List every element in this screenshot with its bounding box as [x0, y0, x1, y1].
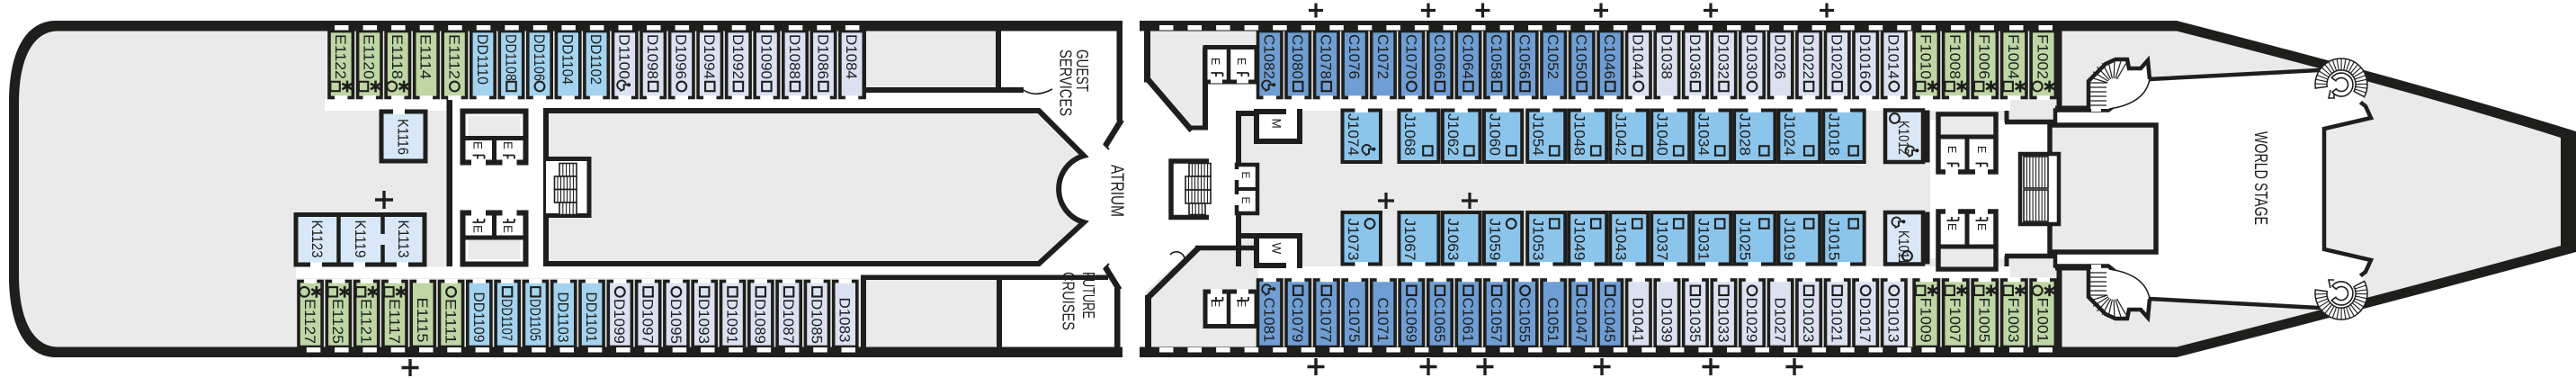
svg-text:E: E [501, 141, 514, 149]
svg-text:C1052: C1052 [1544, 34, 1561, 79]
svg-text:D1084: D1084 [843, 34, 860, 79]
svg-text:E1114: E1114 [417, 34, 434, 79]
svg-text:J1037: J1037 [1654, 219, 1670, 261]
svg-text:E: E [471, 225, 485, 233]
svg-text:J1048: J1048 [1571, 113, 1588, 156]
svg-text:D1035: D1035 [1686, 298, 1704, 343]
svg-text:SERVICES: SERVICES [1056, 49, 1075, 116]
svg-text:D1041: D1041 [1630, 298, 1647, 343]
svg-text:DD1102: DD1102 [587, 34, 604, 85]
svg-text:J1018: J1018 [1826, 113, 1842, 156]
svg-text:E: E [1945, 223, 1958, 230]
svg-text:C1082: C1082 [1261, 34, 1278, 79]
svg-text:J1068: J1068 [1401, 113, 1418, 156]
svg-text:D1085: D1085 [808, 299, 825, 344]
svg-text:F1006: F1006 [1976, 34, 1993, 79]
svg-text:F1005: F1005 [1976, 298, 1993, 343]
svg-text:FUTURE: FUTURE [1079, 272, 1098, 319]
svg-text:J1034: J1034 [1695, 113, 1712, 156]
svg-text:D1083: D1083 [836, 298, 854, 343]
svg-text:D1095: D1095 [667, 299, 684, 344]
svg-text:D1030: D1030 [1743, 34, 1760, 79]
svg-text:D1014: D1014 [1885, 34, 1902, 79]
svg-text:C1080: C1080 [1289, 34, 1306, 79]
svg-text:C1056: C1056 [1516, 34, 1534, 79]
svg-text:F1002: F1002 [2035, 34, 2052, 79]
svg-text:F1003: F1003 [2005, 298, 2022, 343]
svg-text:J1024: J1024 [1781, 113, 1797, 156]
svg-text:C1045: C1045 [1601, 298, 1618, 343]
svg-text:F1010: F1010 [1918, 34, 1935, 79]
svg-text:D1022: D1022 [1800, 34, 1817, 79]
svg-text:D1032: D1032 [1714, 34, 1731, 79]
svg-text:J1015: J1015 [1826, 219, 1842, 261]
svg-text:J1028: J1028 [1737, 113, 1753, 156]
svg-text:DD1107: DD1107 [498, 299, 515, 341]
svg-text:CRUISES: CRUISES [1059, 272, 1078, 330]
svg-text:D1039: D1039 [1658, 298, 1675, 343]
svg-text:D1038: D1038 [1658, 34, 1675, 79]
svg-text:C1066: C1066 [1431, 34, 1448, 79]
svg-text:C1057: C1057 [1488, 298, 1505, 343]
svg-text:D1093: D1093 [695, 299, 712, 344]
svg-text:K1116: K1116 [394, 119, 410, 155]
svg-text:E: E [501, 225, 514, 233]
svg-text:D1092: D1092 [729, 34, 747, 79]
svg-text:D1099: D1099 [611, 299, 628, 344]
svg-text:E: E [471, 141, 485, 149]
svg-text:K1012: K1012 [1895, 121, 1912, 155]
svg-text:F1008: F1008 [1946, 34, 1963, 79]
svg-text:E: E [1975, 223, 1988, 230]
svg-text:D1033: D1033 [1714, 298, 1731, 343]
svg-text:E1122: E1122 [332, 34, 349, 79]
svg-text:J1059: J1059 [1486, 219, 1502, 261]
svg-text:C1050: C1050 [1573, 34, 1590, 79]
svg-text:J1031: J1031 [1695, 219, 1712, 261]
svg-text:E: E [1235, 58, 1248, 65]
svg-text:D1020: D1020 [1829, 34, 1846, 79]
svg-text:C1078: C1078 [1318, 34, 1335, 79]
svg-text:E: E [1209, 58, 1221, 65]
svg-text:DD1103: DD1103 [555, 292, 572, 343]
svg-text:D1090: D1090 [757, 34, 774, 79]
svg-text:J1040: J1040 [1654, 113, 1670, 156]
svg-text:D1044: D1044 [1630, 34, 1647, 79]
svg-text:D1029: D1029 [1743, 298, 1760, 343]
svg-text:C1051: C1051 [1544, 298, 1561, 343]
svg-text:K1123: K1123 [309, 220, 325, 258]
svg-text:E1117: E1117 [386, 299, 403, 344]
svg-text:DD1109: DD1109 [470, 292, 487, 343]
svg-text:E: E [1239, 172, 1252, 179]
svg-text:D1036: D1036 [1686, 34, 1704, 79]
svg-text:C1075: C1075 [1346, 298, 1363, 343]
svg-text:C1047: C1047 [1573, 298, 1590, 343]
svg-text:C1079: C1079 [1289, 298, 1306, 343]
svg-text:C1076: C1076 [1346, 34, 1363, 79]
svg-text:J1062: J1062 [1445, 113, 1461, 156]
svg-text:D1017: D1017 [1856, 298, 1874, 343]
svg-text:D1023: D1023 [1800, 298, 1817, 343]
svg-text:F1001: F1001 [2035, 298, 2052, 343]
svg-text:E: E [1975, 146, 1988, 153]
svg-text:J1060: J1060 [1486, 113, 1502, 156]
svg-text:D1089: D1089 [752, 299, 769, 344]
svg-text:DD1101: DD1101 [583, 292, 600, 343]
svg-text:D1087: D1087 [780, 299, 797, 344]
svg-text:C1061: C1061 [1459, 298, 1476, 343]
svg-text:E1127: E1127 [301, 299, 318, 344]
svg-text:E: E [1945, 146, 1958, 153]
svg-text:C1058: C1058 [1488, 34, 1505, 79]
svg-text:J1063: J1063 [1445, 219, 1461, 261]
svg-text:J1067: J1067 [1401, 219, 1418, 261]
svg-text:D1016: D1016 [1856, 34, 1874, 79]
svg-text:K1119: K1119 [352, 220, 368, 258]
svg-text:C1072: C1072 [1374, 34, 1391, 79]
svg-text:E: E [1239, 197, 1252, 204]
svg-text:C1081: C1081 [1261, 298, 1278, 343]
svg-text:D1013: D1013 [1885, 298, 1902, 343]
svg-text:F1007: F1007 [1946, 298, 1963, 343]
svg-text:J1054: J1054 [1530, 113, 1546, 156]
svg-text:C1070: C1070 [1402, 34, 1419, 79]
svg-text:C1046: C1046 [1601, 34, 1618, 79]
svg-text:DD1104: DD1104 [559, 34, 577, 85]
svg-text:C1064: C1064 [1459, 34, 1476, 79]
svg-text:D1096: D1096 [673, 34, 690, 79]
svg-text:F1004: F1004 [2005, 34, 2022, 79]
svg-text:J1073: J1073 [1345, 219, 1361, 261]
svg-text:J1025: J1025 [1737, 219, 1753, 261]
svg-text:C1055: C1055 [1516, 298, 1534, 343]
svg-text:D1094: D1094 [701, 34, 718, 79]
svg-text:C1069: C1069 [1402, 298, 1419, 343]
svg-text:D1091: D1091 [723, 299, 740, 344]
svg-text:K1113: K1113 [395, 220, 411, 258]
svg-text:D1098: D1098 [644, 34, 661, 79]
svg-text:C1077: C1077 [1318, 298, 1335, 343]
svg-text:E1112: E1112 [445, 34, 462, 79]
svg-text:F1009: F1009 [1918, 298, 1935, 343]
svg-text:DD1110: DD1110 [474, 34, 491, 85]
svg-text:E1111: E1111 [443, 299, 460, 344]
svg-text:C1065: C1065 [1431, 298, 1448, 343]
svg-text:C1071: C1071 [1374, 298, 1391, 343]
svg-text:J1074: J1074 [1345, 113, 1361, 156]
svg-text:DD1105: DD1105 [526, 299, 543, 341]
svg-text:D1097: D1097 [640, 299, 657, 344]
svg-text:DD1108: DD1108 [502, 34, 519, 81]
svg-text:E1120: E1120 [361, 34, 378, 79]
svg-text:E1125: E1125 [329, 299, 346, 344]
svg-text:D1088: D1088 [786, 34, 803, 79]
svg-text:J1042: J1042 [1613, 113, 1629, 156]
svg-text:D1086: D1086 [814, 34, 831, 79]
svg-text:M: M [1270, 119, 1284, 129]
svg-text:E1115: E1115 [414, 298, 431, 343]
svg-text:WORLD STAGE: WORLD STAGE [2250, 131, 2270, 225]
svg-text:J1053: J1053 [1530, 219, 1546, 261]
svg-text:E1118: E1118 [389, 34, 406, 79]
svg-text:J1019: J1019 [1781, 219, 1797, 261]
svg-text:D1021: D1021 [1829, 298, 1846, 343]
svg-text:ATRIUM: ATRIUM [1106, 165, 1126, 217]
svg-text:D1100: D1100 [616, 34, 633, 79]
svg-text:W: W [1270, 243, 1284, 255]
svg-text:DD1106: DD1106 [531, 34, 548, 81]
svg-text:E1121: E1121 [358, 299, 375, 344]
svg-text:D1026: D1026 [1772, 34, 1789, 79]
svg-text:D1027: D1027 [1772, 298, 1789, 343]
svg-text:J1043: J1043 [1613, 219, 1629, 261]
svg-text:J1049: J1049 [1571, 219, 1588, 261]
